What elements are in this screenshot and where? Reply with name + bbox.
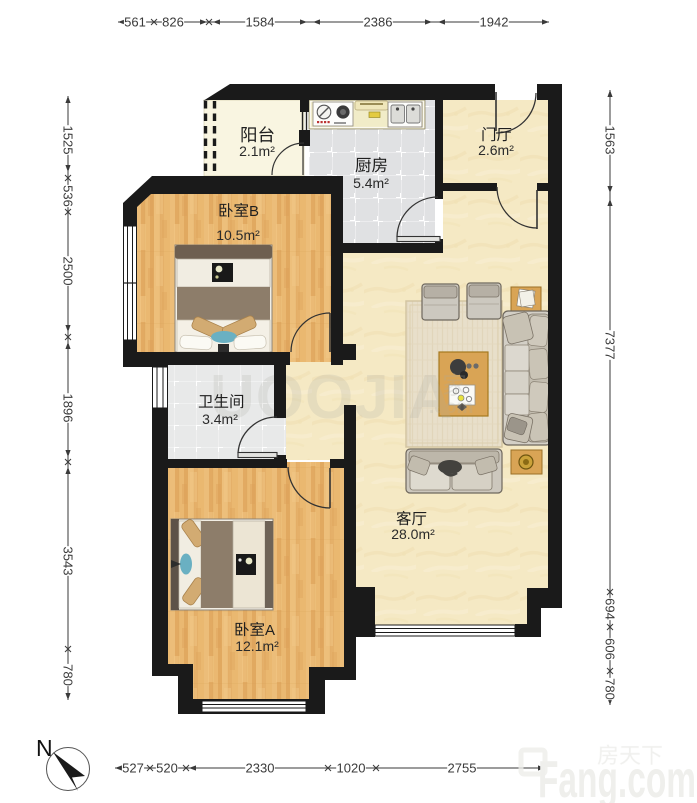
svg-text:536: 536: [61, 185, 76, 207]
svg-text:1563: 1563: [603, 126, 618, 155]
svg-text:2386: 2386: [364, 15, 393, 30]
svg-text:B: B: [249, 203, 259, 220]
svg-text:694: 694: [603, 598, 618, 620]
svg-text:12.1m²: 12.1m²: [235, 638, 279, 654]
svg-text:1896: 1896: [61, 394, 76, 423]
svg-text:10.5m²: 10.5m²: [216, 227, 260, 243]
svg-text:3543: 3543: [61, 547, 76, 576]
svg-text:7377: 7377: [603, 331, 618, 360]
svg-text:.com: .com: [429, 397, 473, 418]
svg-text:2.1m²: 2.1m²: [239, 143, 275, 159]
svg-text:1584: 1584: [246, 15, 275, 30]
svg-text:UOOJIA: UOOJIA: [210, 363, 454, 432]
svg-text:5.4m²: 5.4m²: [353, 175, 389, 191]
svg-text:Fang.com: Fang.com: [538, 751, 696, 803]
svg-text:28.0m²: 28.0m²: [391, 526, 435, 542]
svg-text:780: 780: [61, 664, 76, 686]
svg-text:2755: 2755: [448, 761, 477, 776]
svg-text:826: 826: [162, 15, 184, 30]
svg-text:2330: 2330: [246, 761, 275, 776]
svg-text:2500: 2500: [61, 257, 76, 286]
svg-text:1942: 1942: [480, 15, 509, 30]
svg-text:527: 527: [122, 761, 144, 776]
svg-text:1525: 1525: [61, 126, 76, 155]
svg-text:N: N: [36, 735, 53, 761]
svg-text:561: 561: [124, 15, 146, 30]
svg-text:3.4m²: 3.4m²: [202, 411, 238, 427]
svg-text:606: 606: [603, 638, 618, 660]
svg-text:2.6m²: 2.6m²: [478, 142, 514, 158]
svg-text:A: A: [265, 622, 275, 639]
svg-text:780: 780: [603, 678, 618, 700]
svg-text:1020: 1020: [337, 761, 366, 776]
svg-text:520: 520: [156, 761, 178, 776]
